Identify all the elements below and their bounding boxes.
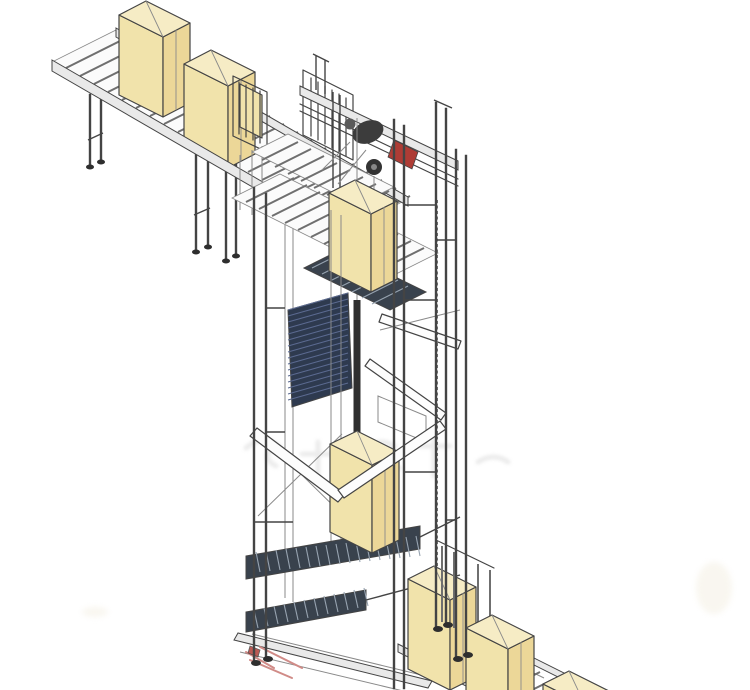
right-beam-upper — [379, 314, 461, 349]
cable-pulley-hub — [371, 164, 377, 170]
tower-foot — [463, 652, 473, 658]
leg-pair-3 — [226, 165, 236, 259]
carton-box-lift-top — [329, 180, 397, 292]
panel-body — [288, 293, 352, 407]
leg-foot — [232, 254, 240, 259]
leg-foot — [86, 165, 94, 170]
tower-foot — [433, 626, 443, 632]
leg-foot — [97, 160, 105, 165]
technical-illustration — [0, 0, 750, 690]
leg-pair-1 — [90, 90, 101, 165]
carton-box-infeed-1 — [119, 1, 190, 117]
leg-foot — [192, 250, 200, 255]
paper-smudge — [82, 607, 108, 617]
watermark — [82, 436, 732, 617]
leg-foot — [222, 259, 230, 264]
leg-foot — [204, 245, 212, 250]
tower-foot — [453, 656, 463, 662]
illustration-stage — [0, 0, 750, 690]
tower-foot — [263, 656, 273, 662]
tower-foot — [251, 660, 261, 666]
paper-smudge — [696, 562, 732, 614]
tower-foot — [443, 622, 453, 628]
tower-post-left-pair — [254, 188, 266, 660]
motor-end-cap — [345, 119, 356, 130]
leg-pair-2 — [196, 147, 208, 250]
carton-box-outfeed-2 — [466, 615, 534, 690]
chain-curtain-panel — [288, 293, 352, 407]
